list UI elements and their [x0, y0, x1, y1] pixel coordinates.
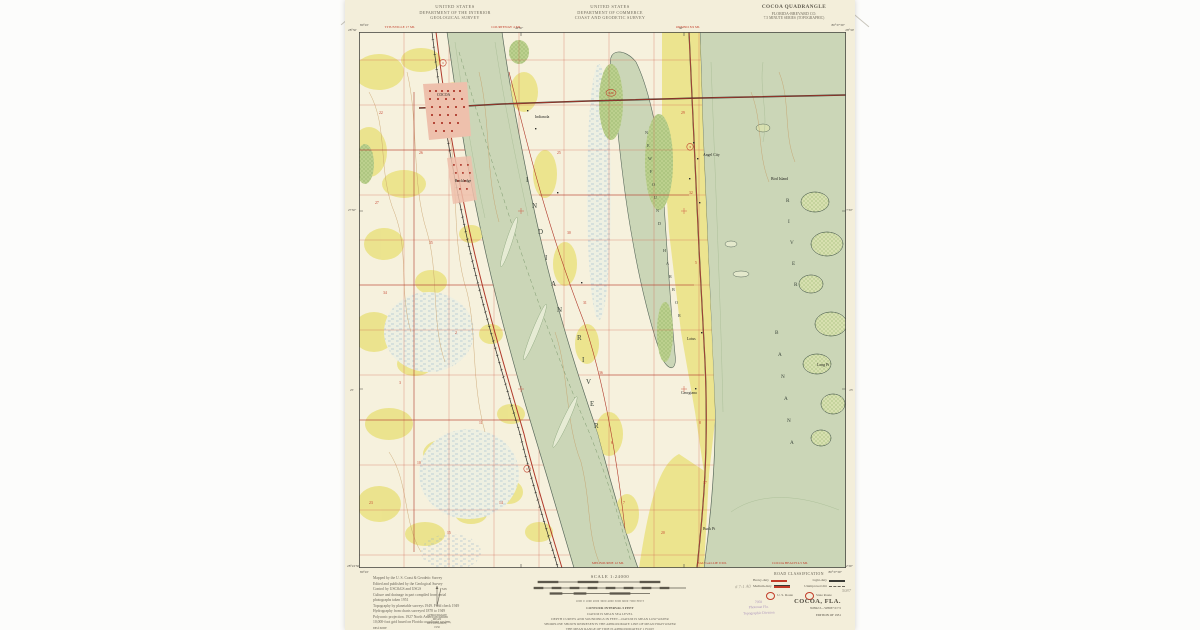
water-name-letter: N [557, 306, 563, 314]
water-name-letter: N [781, 374, 785, 380]
edge-destination-label: ORSINO 8.9 MI. [676, 25, 700, 29]
road-classification-title: ROAD CLASSIFICATION [753, 572, 845, 576]
urban-cocoa [423, 82, 471, 140]
heavy-duty-sample [771, 580, 787, 582]
water-name-letter: N [656, 208, 659, 213]
declination-caption: APPROXIMATE MEAN [425, 613, 449, 621]
edge-destination-label: MELBOURNE 12 MI. [592, 561, 624, 565]
graticule-label: 25' [350, 388, 354, 392]
water-name-letter: V [790, 240, 794, 246]
section-number: 31 [583, 301, 587, 305]
water-name-letter: R [577, 334, 582, 342]
water-name-letter: O [675, 300, 678, 305]
declination-diagram: MN APPROXIMATE MEAN DECLINATION, 1950 [425, 582, 449, 629]
scale-bars [530, 579, 690, 595]
route-number: 520 [608, 91, 613, 95]
water-name-letter: B [672, 287, 675, 292]
water-name-letter: N [645, 130, 648, 135]
edge-destination-label: EAU GALLIE 9 MI. [697, 561, 726, 565]
section-number: 11 [479, 421, 483, 425]
section-number: 6 [611, 441, 613, 445]
us-route-label: U. S. Route [777, 593, 793, 599]
declination-caption: DECLINATION, 1950 [425, 621, 449, 629]
place-label: Buck Pt [703, 527, 716, 531]
water-name-letter: R [594, 422, 599, 430]
section-number: 8 [699, 421, 701, 425]
water-name-letter: R [786, 198, 790, 204]
map-edition: EDITION OF 1951 [794, 613, 841, 617]
water-name-letter: U [654, 195, 657, 200]
edge-destination-label: COCOA BEACH 4.5 MI. [772, 561, 808, 565]
water-name-letter: B [775, 330, 779, 336]
road-class-label: Unimproved dirt [804, 584, 827, 590]
place-label: COCOA [437, 93, 451, 97]
section-number: 10 [417, 461, 421, 465]
water-name-letter: A [778, 352, 782, 358]
water-name-letter: E [647, 143, 650, 148]
declination-arrows: MN [425, 582, 449, 608]
pencil-note: 5087 [842, 588, 851, 593]
water-name-letter: I [582, 356, 585, 364]
stamp-line: Topographic Division [743, 610, 775, 616]
section-number: 27 [375, 201, 379, 205]
place-label: Angel City [703, 153, 720, 157]
section-number: 17 [703, 481, 707, 485]
water-name-letter: R [794, 282, 798, 288]
road-classification: ROAD CLASSIFICATION Heavy-duty Light-dut… [753, 572, 845, 600]
section-number: 34 [383, 291, 387, 295]
water-name-letter: I [545, 254, 548, 262]
section-number: 5 [695, 261, 697, 265]
water-name-letter: R [669, 274, 672, 279]
corner-coord-tr: 80°37'30" [831, 23, 845, 27]
place-label: Indianola [535, 115, 550, 119]
water-name-letter: D [538, 228, 544, 236]
water-name-letter: R [678, 313, 681, 318]
page: { "header": { "agency_left": ["UNITED ST… [0, 0, 1200, 630]
quad-series: 7.5 MINUTE SERIES (TOPOGRAPHIC) [735, 16, 853, 20]
water-name-letter: E [792, 261, 795, 267]
map-canvas: INDIANRIVERNEWFOUNDHARBORBANANARIVER COC… [359, 32, 846, 568]
place-label: Bird Island [771, 177, 788, 181]
map-notes: CONTOUR INTERVAL 5 FEETDATUM IS MEAN SEA… [530, 606, 690, 630]
water-name-letter: A [784, 396, 788, 402]
graticule-label: 27'30" [348, 208, 356, 212]
map-title-block: COCOA, FLA. N2822.5—W8037.5/7.5 EDITION … [794, 598, 841, 617]
section-number: 36 [599, 371, 603, 375]
water-name-letter: H [663, 248, 666, 253]
water-name-letter: W [648, 156, 652, 161]
archive-stamp: 7058 Photostat Fla. Topographic Division [743, 599, 775, 616]
road-class-row: Medium-duty Unimproved dirt [753, 584, 845, 590]
water-name-letter: V [586, 378, 592, 386]
water-name-letter: O [652, 182, 655, 187]
header-line: GEOLOGICAL SURVEY [385, 15, 525, 20]
light-duty-sample [829, 580, 845, 582]
scale-block: SCALE 1:24000 1000 0 1000 2000 3000 4000… [530, 574, 690, 630]
water-name-letter: N [532, 202, 538, 210]
place-label: Rockledge [455, 179, 472, 183]
edge-destination-label: TITUSVILLE 17 MI. [385, 25, 415, 29]
section-number: 25 [557, 151, 561, 155]
place-label: Lotus [687, 337, 696, 341]
header-line: COAST AND GEODETIC SURVEY [530, 15, 690, 20]
water-name-letter: E [590, 400, 595, 408]
road-class-label: Medium-duty [753, 584, 772, 590]
section-number: 35 [429, 241, 433, 245]
route-number: 1 [526, 467, 528, 471]
water-name-letter: A [666, 261, 669, 266]
quad-title-block: COCOA QUADRANGLE FLORIDA-BREVARD CO. 7.5… [735, 4, 853, 20]
medium-duty-sample [774, 585, 790, 588]
edge-destination-label: COURTENAY 4 MI. [491, 25, 521, 29]
pencil-note: # 7-1 A0 [735, 584, 751, 590]
map-coordcode: N2822.5—W8037.5/7.5 [794, 606, 841, 610]
section-number: 15 [447, 531, 451, 535]
graticule-label: 25' [849, 388, 853, 392]
water-name-letter: A [551, 280, 557, 288]
route-number: 1 [442, 61, 444, 65]
section-number: 2 [455, 331, 457, 335]
corner-coord-tl-lat: 28°30' [348, 28, 357, 32]
corner-coord-bl: 80°45' [360, 570, 369, 574]
place-label: Long Pt [817, 363, 830, 367]
water-name-letter: N [787, 418, 791, 424]
section-number: 14 [499, 501, 503, 505]
corner-coord-tr-lat: 28°30' [845, 28, 854, 32]
water-name-letter: I [788, 219, 790, 225]
agency-left: UNITED STATES DEPARTMENT OF THE INTERIOR… [385, 4, 525, 20]
water-name-letter: A [790, 440, 794, 446]
map-sheet: UNITED STATES DEPARTMENT OF THE INTERIOR… [345, 0, 855, 630]
section-number: 23 [369, 501, 373, 505]
water-name-letter: I [526, 176, 529, 184]
corner-coord-tl: 80°45' [360, 23, 369, 27]
section-number: 3 [399, 381, 401, 385]
section-number: 30 [567, 231, 571, 235]
section-number: 7 [623, 501, 625, 505]
route-number: 3 [689, 145, 691, 149]
section-number: 32 [689, 191, 693, 195]
water-name-letter: D [658, 221, 661, 226]
section-number: 29 [681, 111, 685, 115]
agency-center: UNITED STATES DEPARTMENT OF COMMERCE COA… [530, 4, 690, 20]
map-title: COCOA, FLA. [794, 598, 841, 605]
section-number: 22 [379, 111, 383, 115]
us-route-shield-icon [766, 592, 775, 600]
section-number: 20 [661, 531, 665, 535]
scale-feet-ticks: 1000 0 1000 2000 3000 4000 5000 6000 700… [530, 600, 690, 604]
section-number: 26 [419, 151, 423, 155]
svg-text:MN: MN [442, 587, 448, 591]
place-label: Georgiana [681, 391, 697, 395]
